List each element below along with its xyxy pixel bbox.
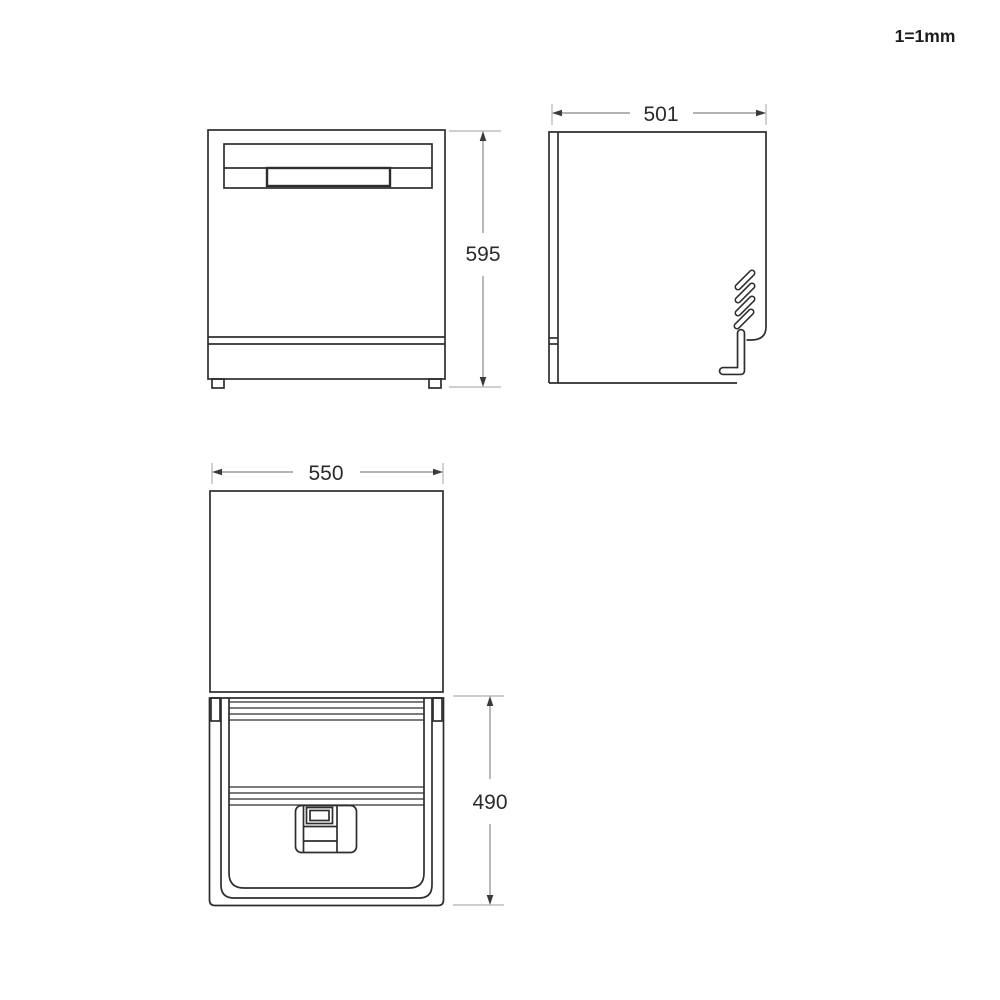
left-foot: [212, 379, 224, 388]
dimension-height-595: 595: [449, 131, 501, 387]
front-view: [208, 130, 445, 388]
vent-slots: [737, 273, 752, 326]
door-outer-outline: [210, 698, 444, 906]
door-top-edge-lines: [229, 702, 424, 720]
arrowhead-left: [552, 110, 562, 117]
arrowhead-down: [480, 377, 487, 387]
dimension-width-550: 550: [212, 462, 443, 485]
arrowhead-up: [480, 131, 487, 141]
dimension-depth-501: 501: [552, 103, 766, 126]
drain-hose-outline: [723, 333, 741, 371]
right-hinge-tab: [433, 698, 442, 721]
dimension-door-depth-490: 490: [453, 696, 508, 905]
left-hinge-tab: [211, 698, 220, 721]
dimension-label-depth: 501: [643, 103, 678, 126]
dishwasher-dimension-diagram: 595 501: [0, 0, 1000, 1000]
door-middle-outline: [221, 698, 432, 898]
door-handle: [267, 168, 390, 186]
drain-hose: [723, 333, 741, 371]
dimension-label-door-depth: 490: [472, 791, 507, 814]
cabinet-top-outline: [210, 491, 443, 692]
arrowhead-left: [212, 469, 222, 476]
control-panel-outline: [224, 144, 432, 188]
dimension-label-width: 550: [308, 462, 343, 485]
detergent-dispenser: [296, 806, 357, 853]
side-view: [549, 132, 766, 383]
dispenser-outline: [296, 806, 357, 853]
scale-note: 1=1mm: [895, 26, 956, 46]
arrowhead-right: [433, 469, 443, 476]
right-foot: [429, 379, 441, 388]
plan-view-door-open: [210, 491, 444, 906]
arrowhead-down: [487, 895, 494, 905]
dimension-label-height: 595: [465, 243, 500, 266]
arrowhead-up: [487, 696, 494, 706]
corner-fillet: [747, 327, 767, 340]
side-body-outline: [549, 132, 766, 383]
arrowhead-right: [756, 110, 766, 117]
technical-drawing-canvas: 595 501: [0, 0, 1000, 1000]
door-middle-strip-lines: [229, 787, 424, 805]
